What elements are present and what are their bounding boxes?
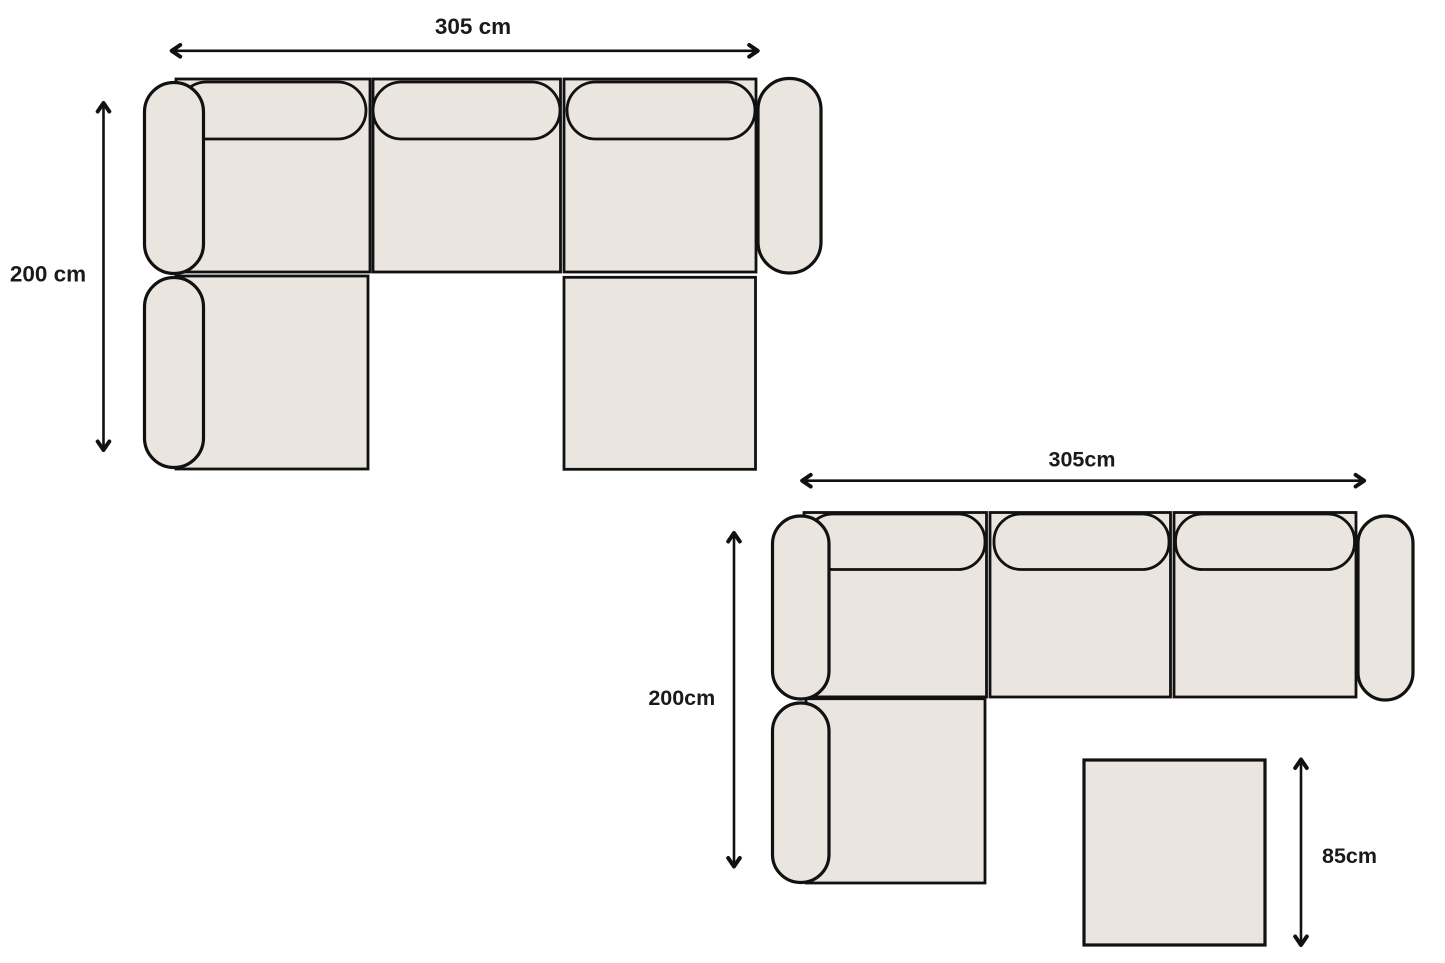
svg-text:305 cm: 305 cm	[435, 14, 511, 39]
svg-text:200cm: 200cm	[648, 686, 715, 710]
svg-text:305cm: 305cm	[1049, 448, 1116, 472]
svg-text:85cm: 85cm	[1322, 844, 1377, 868]
svg-text:200 cm: 200 cm	[10, 261, 86, 286]
